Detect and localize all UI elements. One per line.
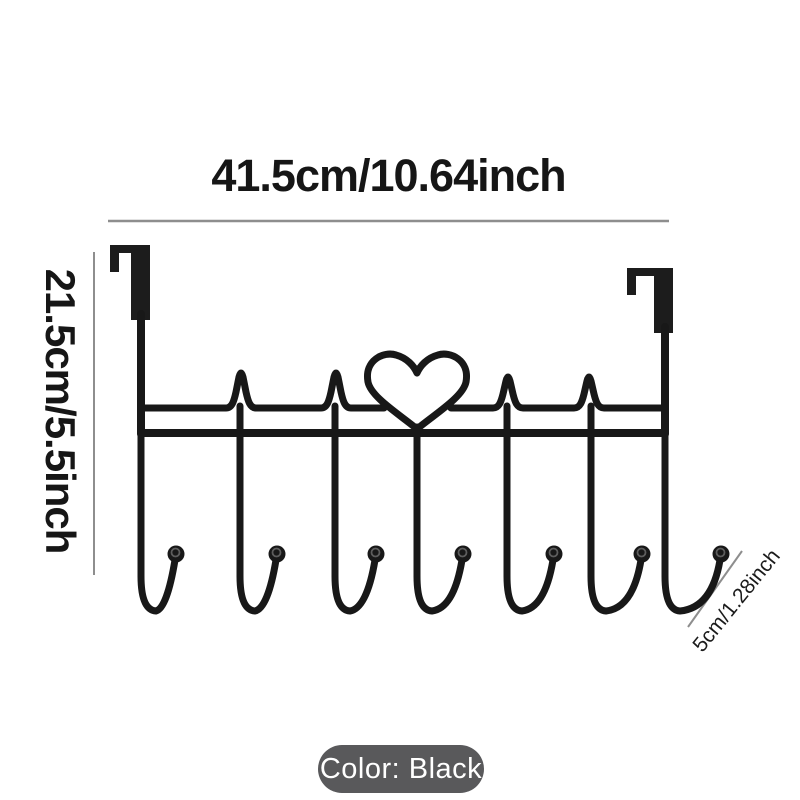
hook-4 — [417, 427, 462, 611]
width-dimension-label: 41.5cm/10.64inch — [108, 150, 669, 202]
height-dimension-label: 21.5cm/5.5inch — [36, 269, 84, 554]
product-drawing — [0, 0, 800, 800]
product-image-canvas: 41.5cm/10.64inch 21.5cm/5.5inch 5cm/1.28… — [0, 0, 800, 800]
hook-ball-icon — [455, 546, 472, 563]
hook-ball-icon — [368, 546, 385, 563]
heartbeat-line-left — [141, 373, 384, 408]
hook-ball-icon — [546, 546, 563, 563]
hook-7 — [665, 329, 720, 611]
hook-ball-icon — [634, 546, 651, 563]
heartbeat-line-right — [451, 377, 665, 408]
left-door-bracket — [110, 245, 150, 320]
color-badge-text: Color: Black — [320, 753, 482, 786]
hook-1 — [141, 316, 175, 611]
color-badge: Color: Black — [318, 745, 484, 793]
hook-ball-icon — [168, 546, 185, 563]
hook-ball-icon — [713, 546, 730, 563]
hook-ball-tips — [168, 546, 730, 563]
heart-shape — [367, 354, 466, 429]
hook-ball-icon — [269, 546, 286, 563]
